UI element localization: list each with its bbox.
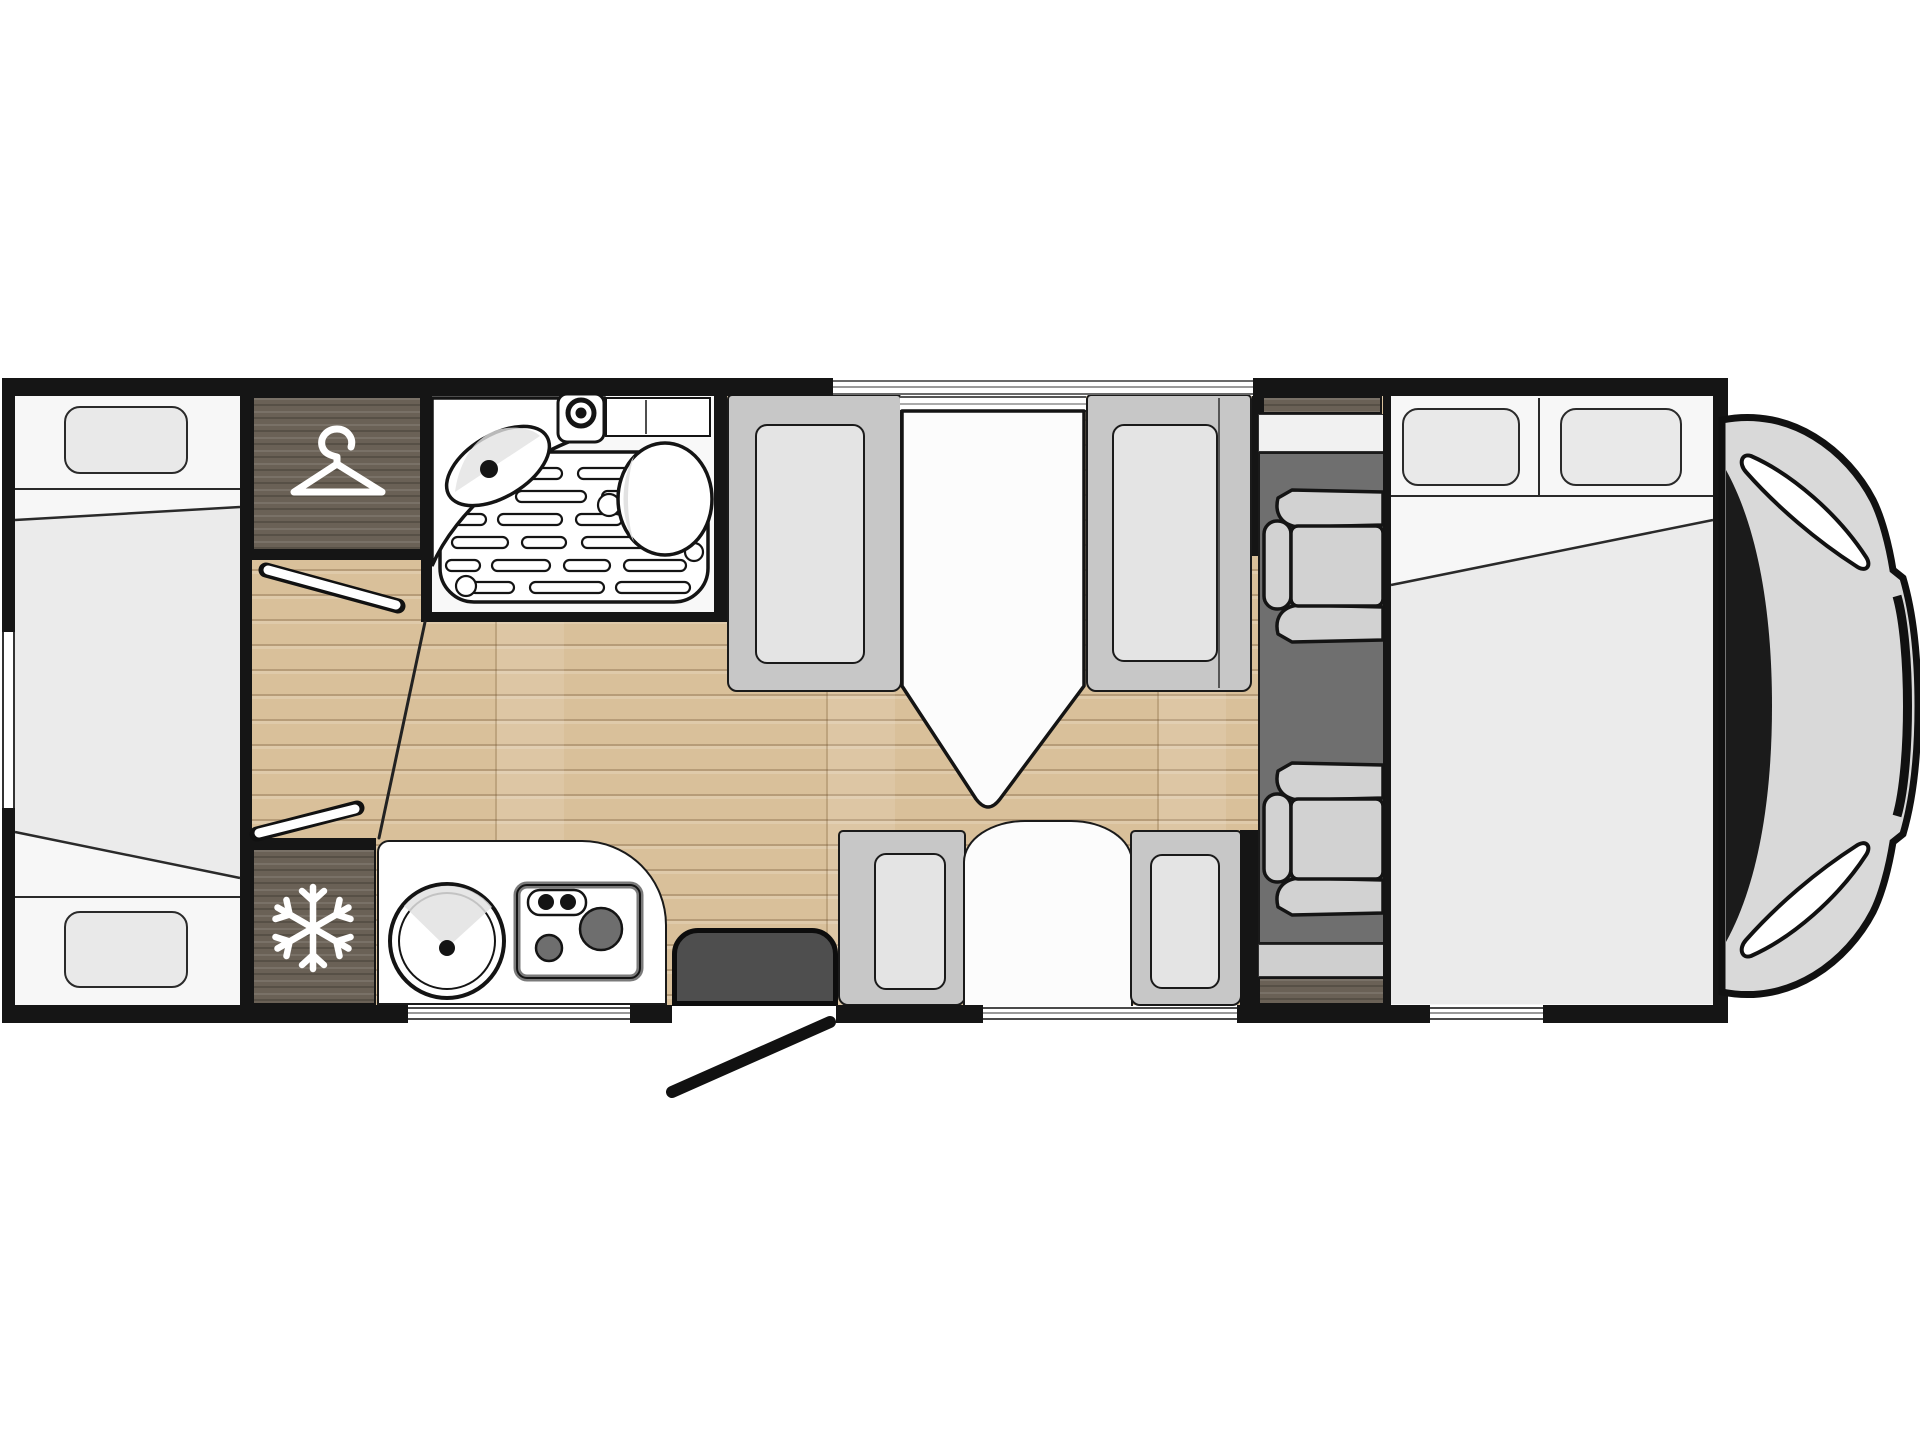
seat-armrest-top (1277, 763, 1383, 800)
detail-overlay (0, 0, 1920, 1440)
sink-drain (439, 940, 455, 956)
cab-seat-driver (1264, 763, 1383, 915)
hanger-icon (294, 429, 382, 492)
seat-cushion (1291, 799, 1383, 879)
cab-seat-passenger (1264, 490, 1383, 642)
rear-bed-duvet (15, 507, 240, 878)
seat-armrest-bottom (1277, 605, 1383, 642)
seat-backrest (1264, 794, 1291, 882)
vehicle-nose (1722, 417, 1918, 994)
front-bed-duvet (1391, 520, 1713, 1004)
seat-armrest-bottom (1277, 878, 1383, 915)
door-swing-line (379, 622, 425, 838)
faucet (558, 394, 604, 442)
entry-door-leaf (672, 1022, 830, 1092)
bedroom-door-panel (268, 570, 396, 605)
basin-drain (480, 460, 498, 478)
washroom-door-panel (259, 809, 355, 833)
front-duvet-body (1391, 520, 1713, 1004)
seat-backrest (1264, 521, 1291, 609)
partition-doors (257, 570, 425, 838)
toilet-cistern-shelf (606, 398, 710, 436)
snowflake-icon (272, 887, 354, 969)
rear-duvet-body (15, 507, 240, 878)
bathroom-fixtures (432, 394, 712, 602)
seat-armrest-top (1277, 490, 1383, 527)
seat-cushion (1291, 526, 1383, 606)
kitchen-sink (390, 884, 504, 998)
kitchen-hob (517, 885, 640, 978)
floorplan-stage (0, 0, 1920, 1440)
burner-large (580, 908, 622, 950)
dinette-table (902, 411, 1084, 807)
burner-small (536, 935, 562, 961)
